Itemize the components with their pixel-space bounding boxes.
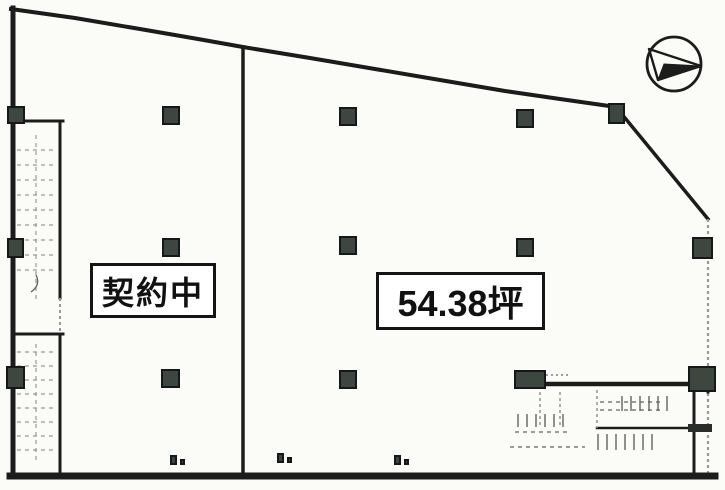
- north-arrow-icon: [647, 37, 701, 91]
- structural-column: [7, 367, 24, 388]
- structural-column: [517, 110, 533, 127]
- floor-plan-drawing: [0, 0, 725, 490]
- stair-treads-lower: [17, 344, 57, 460]
- structural-column: [405, 460, 408, 464]
- structural-column: [340, 371, 356, 388]
- structural-column: [8, 239, 23, 257]
- outer-walls: [10, 8, 715, 477]
- structural-column: [8, 107, 24, 123]
- floor-plan-page: 契約中 54.38坪: [0, 0, 725, 490]
- structural-column: [163, 239, 179, 256]
- stairwell-lower: [13, 334, 63, 476]
- structural-column: [609, 104, 624, 123]
- wall-nib: [688, 424, 712, 432]
- top-wall: [11, 9, 616, 107]
- stairwell-upper: [13, 121, 63, 334]
- structural-column: [340, 237, 356, 254]
- diagonal-wall: [616, 107, 708, 219]
- structural-column: [517, 239, 533, 256]
- structural-column: [162, 370, 179, 387]
- structural-column: [689, 367, 715, 391]
- structural-column: [163, 107, 179, 124]
- service-area: [510, 375, 712, 473]
- structural-column: [288, 458, 291, 462]
- unit-status-text: 契約中: [102, 268, 204, 314]
- structural-column: [340, 108, 356, 125]
- structural-column: [395, 456, 400, 464]
- structural-column: [171, 456, 176, 464]
- unit-area-text: 54.38坪: [397, 275, 523, 327]
- unit-area-label: 54.38坪: [376, 272, 545, 330]
- structural-column: [278, 454, 283, 462]
- unit-status-label: 契約中: [90, 263, 216, 318]
- structural-column: [693, 238, 712, 258]
- door-swing-mark: [31, 275, 38, 292]
- scan-artifact-smudge: [0, 480, 725, 490]
- stair-treads-upper: [17, 135, 57, 300]
- structural-column: [515, 371, 545, 388]
- structural-column: [181, 460, 184, 464]
